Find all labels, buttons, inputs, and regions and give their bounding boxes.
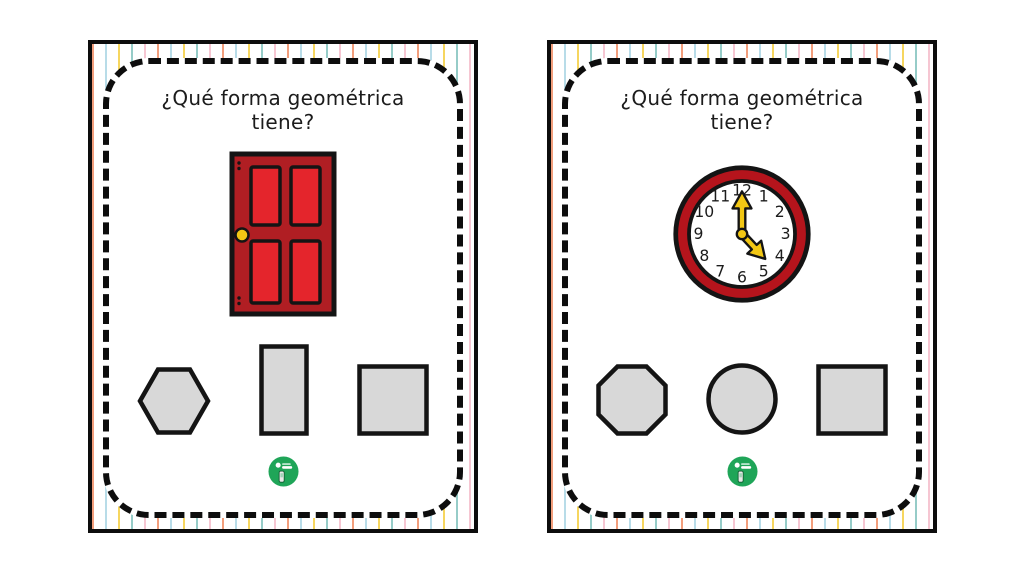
card-inner: ¿Qué forma geométrica tiene? 12 1 2 3 4 … [562,58,922,518]
answer-options-row [109,344,457,436]
svg-text:3: 3 [781,225,791,243]
option-square[interactable] [816,364,888,436]
svg-text:6: 6 [737,269,747,287]
svg-text:5: 5 [759,263,769,281]
brand-logo [268,456,299,487]
card-title: ¿Qué forma geométrica tiene? [161,86,404,134]
title-line2: tiene? [161,110,404,134]
svg-text:4: 4 [775,247,785,265]
green-brand-logo-icon [268,456,299,487]
title-line1: ¿Qué forma geométrica [161,86,404,110]
option-circle[interactable] [705,362,779,436]
door-knob [236,229,249,242]
option-rectangle[interactable] [259,344,309,436]
option-octagon[interactable] [596,364,668,436]
green-brand-logo-icon [727,456,758,487]
card-title: ¿Qué forma geométrica tiene? [620,86,863,134]
svg-text:9: 9 [693,225,703,243]
svg-text:7: 7 [715,263,725,281]
door-panel [251,167,280,225]
brand-logo [727,456,758,487]
answer-options-row [568,344,916,436]
title-line1: ¿Qué forma geométrica [620,86,863,110]
option-hexagon[interactable] [137,366,211,436]
door-panel [291,241,320,303]
flashcard-clock: ¿Qué forma geométrica tiene? 12 1 2 3 4 … [547,40,937,533]
door-illustration [229,151,337,317]
svg-text:10: 10 [694,203,714,221]
flashcard-door: ¿Qué forma geométrica tiene? [88,40,478,533]
door-panel [251,241,280,303]
svg-text:2: 2 [775,203,785,221]
option-square[interactable] [357,364,429,436]
title-line2: tiene? [620,110,863,134]
svg-text:8: 8 [699,247,709,265]
figure-area [109,146,457,322]
svg-text:11: 11 [710,187,730,205]
svg-text:1: 1 [759,187,769,205]
card-inner: ¿Qué forma geométrica tiene? [103,58,463,518]
door-panel [291,167,320,225]
clock-illustration: 12 1 2 3 4 5 6 7 8 9 10 11 [671,163,813,305]
clock-center-pin [737,229,747,239]
figure-area: 12 1 2 3 4 5 6 7 8 9 10 11 [568,146,916,322]
